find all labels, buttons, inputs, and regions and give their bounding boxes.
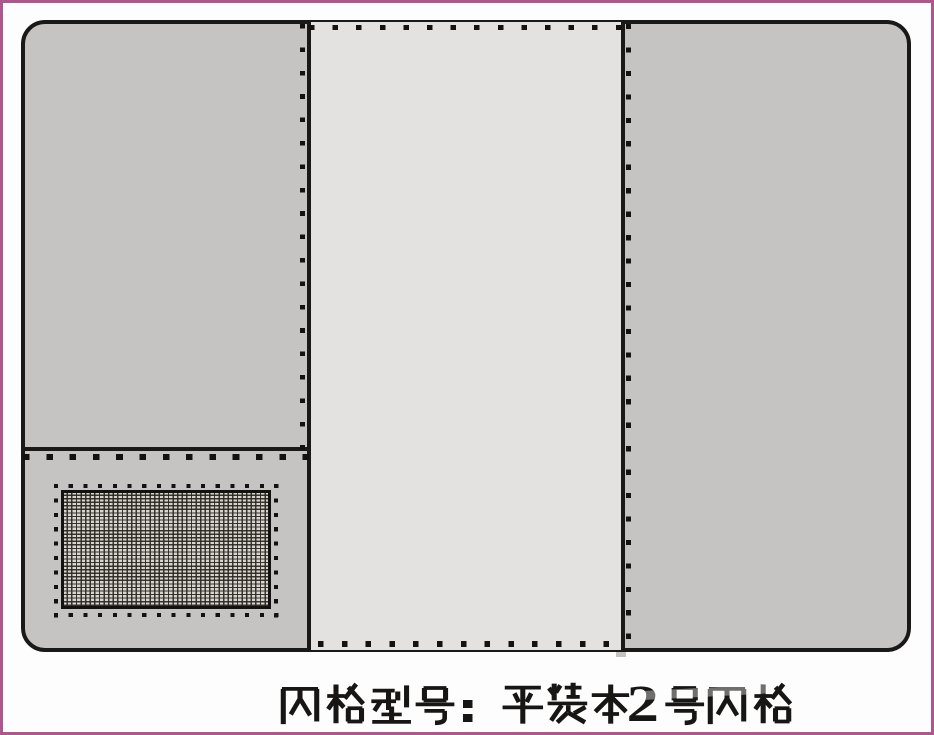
svg-text:2: 2 [627, 675, 660, 732]
